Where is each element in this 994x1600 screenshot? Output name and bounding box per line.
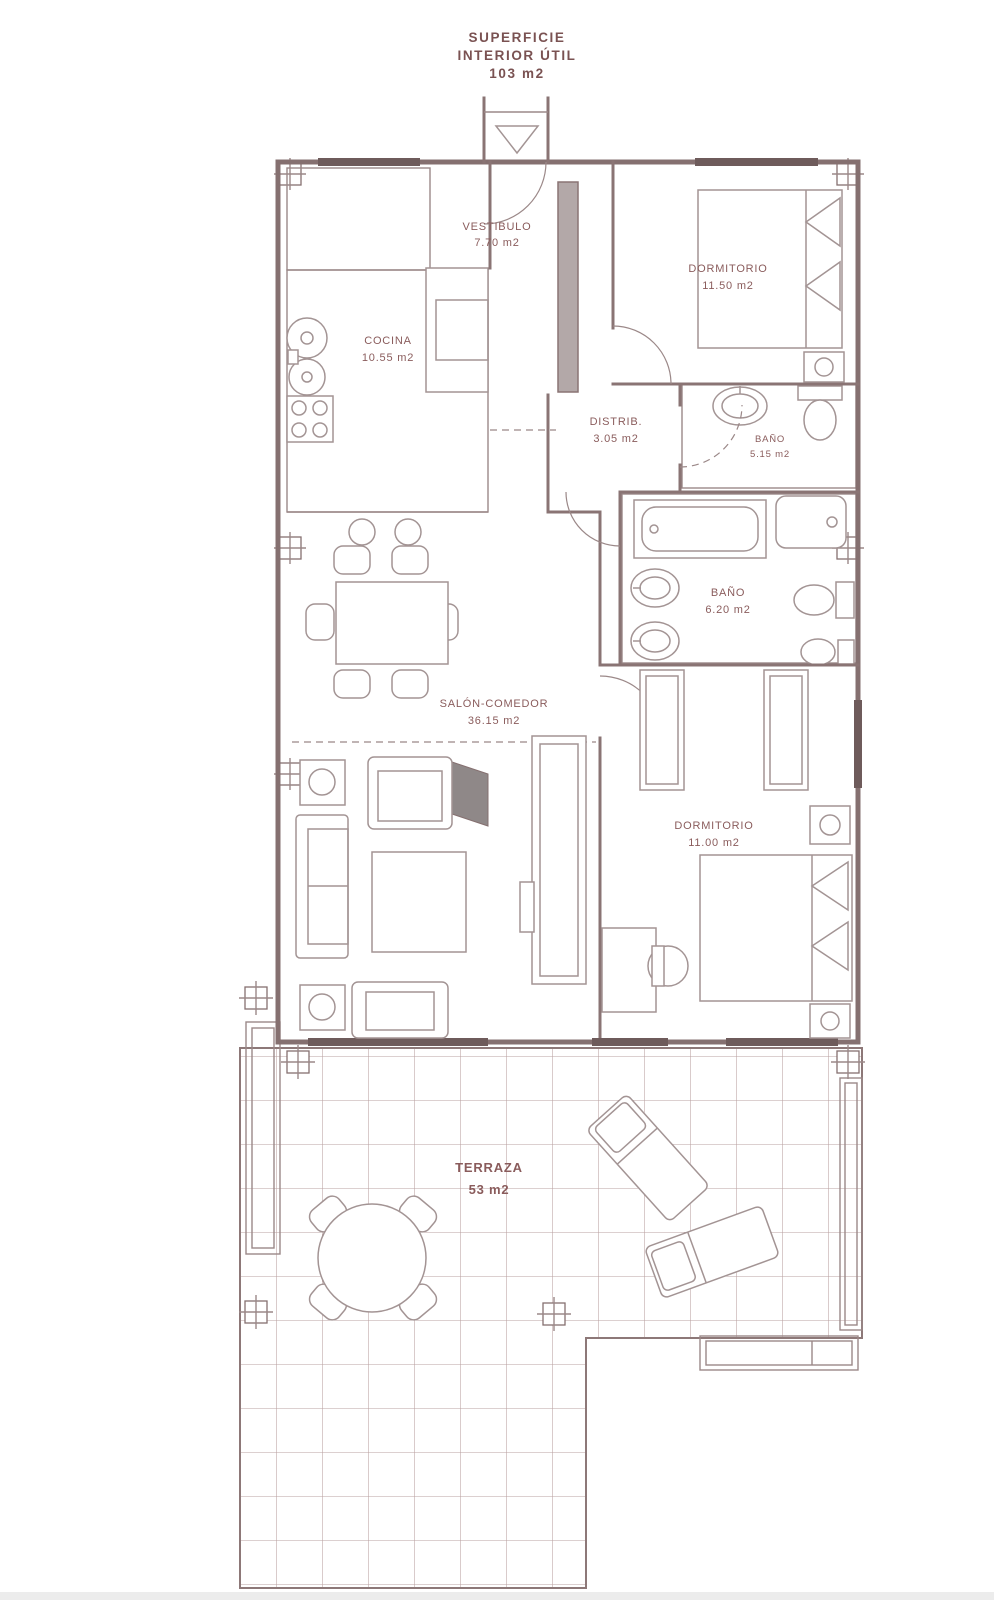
entrance-door-arc [484, 162, 546, 224]
salon-ceiling-light-1 [349, 519, 375, 545]
dining-table [336, 582, 448, 664]
bedroom-2 [602, 670, 852, 1038]
room-area-dormitorio2: 11.00 m2 [688, 837, 739, 849]
side-table-1 [300, 760, 345, 805]
room-label-vestibulo: VESTIBULO [463, 221, 532, 233]
bathroom2-bathtub [634, 500, 766, 558]
bedroom2-nightstand-2 [810, 1004, 850, 1038]
bedroom2-wardrobe-2 [764, 670, 808, 790]
floor-plan-page: SUPERFICIE INTERIOR ÚTIL 103 m2 VESTIBUL… [0, 0, 994, 1600]
room-label-dormitorio2: DORMITORIO [674, 820, 753, 832]
salon-terrace-door [308, 1038, 488, 1046]
kitchen-stove [287, 396, 333, 442]
sofa [296, 815, 348, 958]
room-area-bano2: 6.20 m2 [705, 604, 750, 616]
coffee-table [372, 852, 466, 952]
side-table-2 [300, 985, 345, 1030]
room-label-dormitorio1: DORMITORIO [688, 263, 767, 275]
armchair-2 [352, 982, 448, 1038]
terrace-table-set [306, 1192, 440, 1323]
bedroom2-bed [700, 855, 852, 1001]
bathroom1-sink [713, 386, 767, 425]
room-label-distribuidor: DISTRIB. [590, 416, 643, 428]
room-label-bano2: BAÑO [711, 586, 745, 599]
bedroom2-desk [602, 928, 688, 1012]
room-label-bano1: BAÑO [755, 434, 785, 445]
page-bottom-edge [0, 1592, 994, 1600]
bathroom2-bidet [801, 639, 854, 665]
room-label-cocina: COCINA [364, 335, 412, 347]
bathroom1-toilet [798, 386, 842, 440]
bedroom1-window [695, 158, 818, 166]
bedroom2-side-window [854, 700, 862, 788]
armchair-1 [368, 757, 488, 829]
plan-title-line1: SUPERFICIE [468, 30, 565, 45]
floor-plan-drawing: SUPERFICIE INTERIOR ÚTIL 103 m2 VESTIBUL… [0, 0, 994, 1600]
bedroom2-nightstand-1 [810, 806, 850, 844]
salon [296, 519, 586, 1038]
room-area-bano1: 5.15 m2 [750, 449, 790, 460]
bedroom2-wardrobe-1 [640, 670, 684, 790]
terrace-round-table [318, 1204, 426, 1312]
salon-ceiling-light-2 [395, 519, 421, 545]
plan-title-line2: INTERIOR ÚTIL [457, 48, 576, 63]
terrace-planter-bottom [700, 1336, 858, 1370]
room-area-vestibulo: 7.70 m2 [474, 237, 519, 249]
bedroom1-nightstand [804, 352, 844, 382]
kitchen-sink [287, 318, 327, 395]
bathroom2-sink-1 [631, 569, 679, 607]
room-area-terraza: 53 m2 [469, 1182, 510, 1197]
room-area-cocina: 10.55 m2 [362, 352, 414, 364]
room-label-terraza: TERRAZA [455, 1160, 523, 1175]
room-area-distribuidor: 3.05 m2 [593, 433, 638, 445]
room-area-salon: 36.15 m2 [468, 715, 520, 727]
bathroom2-shower-tray [776, 496, 846, 548]
central-wall-slab [558, 182, 578, 392]
kitchen-tall-unit [426, 268, 488, 392]
bathroom-2 [622, 494, 856, 665]
bedroom2-terrace-window [726, 1038, 838, 1046]
plan-title-line3: 103 m2 [489, 66, 544, 81]
bathroom2-sink-2 [631, 622, 679, 660]
dining-table-set [306, 546, 458, 698]
bathroom2-toilet [794, 582, 854, 618]
salon-terrace-door-2 [592, 1038, 668, 1046]
tv-cabinet [520, 736, 586, 984]
entrance-arrow-icon [496, 126, 538, 153]
room-label-salon: SALÓN-COMEDOR [440, 697, 549, 710]
kitchen-window [318, 158, 420, 166]
bathroom2-door-arc [566, 492, 620, 546]
kitchen-floor-tiles [287, 168, 430, 270]
bedroom1-door-arc [613, 326, 671, 384]
room-area-dormitorio1: 11.50 m2 [702, 280, 753, 292]
